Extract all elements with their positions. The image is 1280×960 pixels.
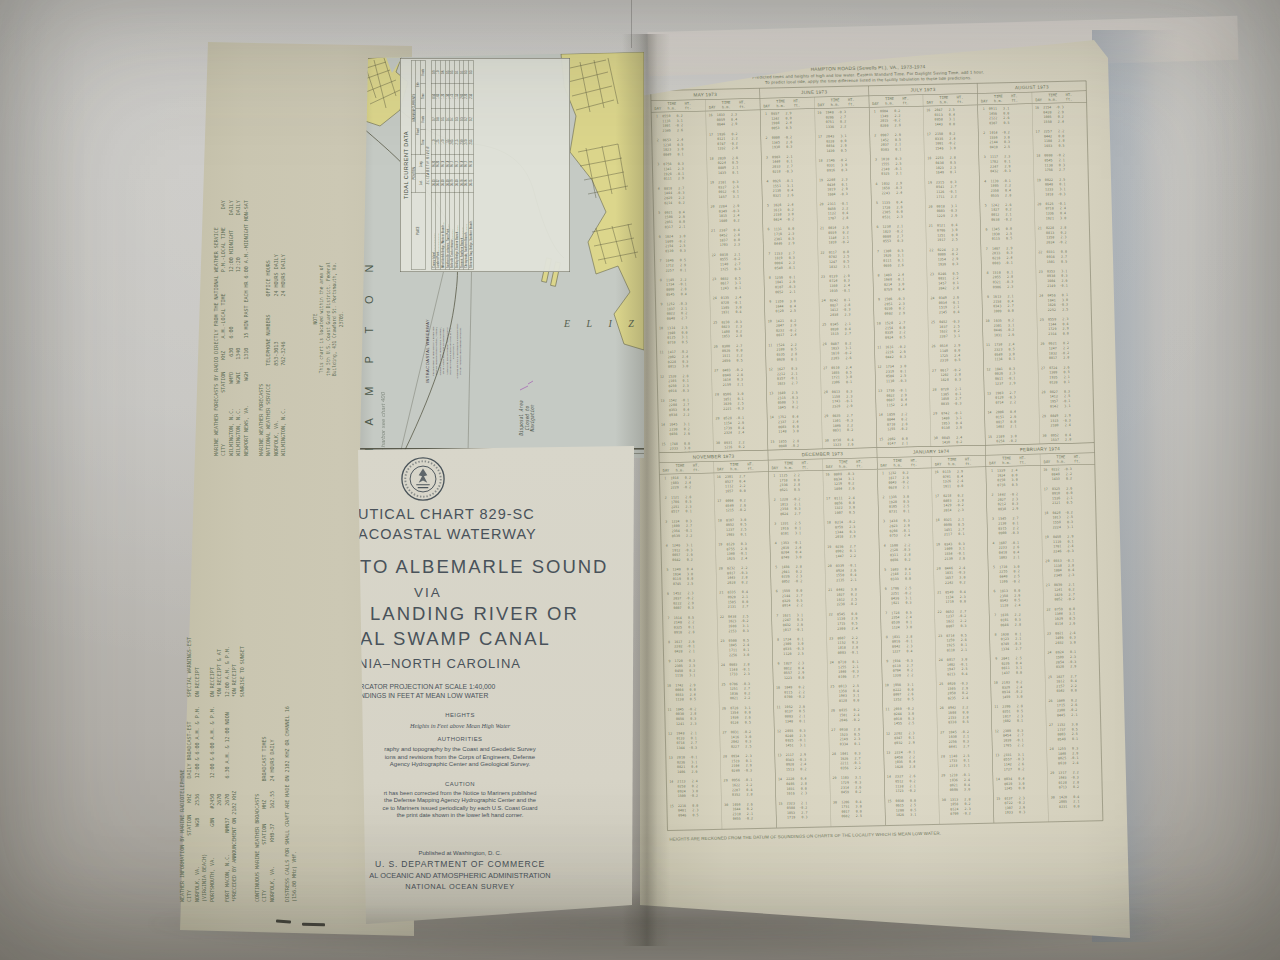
tide-half-month-column: 1 1125 2.2 1710 0.0 2336 2.8 0521 0.5 2 … — [768, 471, 831, 828]
current-value: 2 40 — [464, 130, 469, 155]
current-value: 1 05 — [436, 84, 441, 109]
current-value: 36 53 — [431, 173, 436, 192]
tide-half-month-column: 16 1940 -0.3 0206 2.7 0751 0.2 1336 2.2 … — [814, 108, 876, 449]
tide-half-month-column: 16 0222 -0.3 0848 2.2 1433 0.2 17 0325 2… — [1040, 465, 1103, 822]
current-value: 76 18 — [459, 155, 464, 174]
tide-half-month-column: 16 2301 2.7 0527 0.4 1112 2.2 1657 0.0 1… — [714, 472, 777, 829]
col-flood: Flood — [416, 109, 421, 155]
tide-table-bands: MAY 1973JUNE 1973JULY 1973AUGUST 1973 TI… — [650, 81, 1103, 831]
day-time-ht-header: TIME HT. DAY h.m. ft. — [868, 95, 923, 107]
chart-cover-panel: UTICAL CHART 829-SC ACOASTAL WATERWAY TO… — [352, 446, 634, 924]
harbor-map-drawing — [356, 52, 644, 458]
disposal-area-label: Disposal Area Closed to Navigation — [519, 388, 551, 448]
tide-half-month-column: 1 0804 0.2 1349 2.2 2015 -0.2 0200 2.8 2… — [869, 106, 931, 447]
day-time-ht-header: TIME HT. DAY h.m. ft. — [877, 457, 932, 469]
current-value: 0.5 — [450, 61, 455, 84]
col-time: Time — [421, 84, 426, 109]
col-time: Time — [421, 130, 426, 155]
caution-heading: CAUTION — [352, 781, 568, 787]
tide-band: NOVEMBER 1973DECEMBER 1973JANUARY 1974FE… — [659, 443, 1102, 831]
chart-note-block: NOTE This chart is located within the ar… — [312, 244, 350, 394]
tide-half-month-column: 1 1232 0.2 1817 2.6 0043 -0.2 0628 2.1 2… — [877, 468, 940, 825]
current-value: 2 05 — [459, 84, 464, 109]
place-name: Southern Br. entrance, Town Point...... — [445, 192, 450, 269]
current-value: 0.4 — [450, 109, 455, 130]
place-name: Chesapeake, Southern Branch............ — [464, 192, 469, 269]
day-time-ht-header: TIME HT. DAY h.m. ft. — [713, 460, 768, 472]
noaa-seal-icon — [400, 456, 446, 502]
tidal-current-row: Belleville Creek entrance..............3… — [450, 61, 455, 270]
pier-bars — [542, 258, 561, 287]
title-line-sound: TO ALBEMARLE SOUND — [360, 556, 608, 578]
tidal-current-rows: ELIZABETH RIVERCraney Island............… — [425, 61, 473, 270]
tidal-current-row: Southern Br. entrance, Town Point......3… — [445, 61, 450, 270]
tide-half-month-column: 16 2047 2.5 0313 0.4 0858 3.1 1443 0.0 1… — [923, 105, 985, 446]
current-value: 0.2 — [464, 109, 469, 130]
current-value: 2 15 — [455, 130, 460, 155]
current-value: 36 49 — [450, 173, 455, 192]
current-value: 0.5 — [445, 61, 450, 84]
current-value: 0.6 — [440, 61, 445, 84]
place-name: Lambert Point.......................... — [436, 192, 441, 269]
col-knots: Knots — [421, 61, 426, 84]
current-value: 36 52 — [436, 173, 441, 192]
place-name: West Norfolk Bridge, Western Branch.... — [440, 192, 445, 269]
tide-values-row: 1 1018 0.2 1603 2.4 2229 -0.2 2 1121 2.8… — [660, 465, 1103, 831]
tidal-current-row: Gosport, Southern Branch...............3… — [459, 61, 464, 270]
photo-of-folded-nautical-chart: HAMPTON ROADS (Sewells Pt.), VA., 1973-1… — [0, 0, 1280, 960]
current-value: 2 20 — [464, 84, 469, 109]
current-value: 36 46 — [464, 173, 469, 192]
current-value: 2 30 — [459, 130, 464, 155]
current-value: 1 45 — [450, 84, 455, 109]
tidal-current-row: Gilmerton Swg. Bridge, Southern Branch.3… — [469, 61, 474, 270]
waterway-note-text: The waterway is indicated by a purple li… — [431, 286, 462, 416]
hampton-label: H A M P T O N for harbor see chart 400 — [363, 266, 389, 456]
tide-values-row: 1 0550 0.2 1135 3.1 1801 -0.2 2346 2.6 2… — [651, 103, 1094, 453]
current-value: 76 17 — [450, 155, 455, 174]
shoreline-lines — [356, 110, 564, 452]
magenta-waterway-marks — [520, 381, 533, 390]
waterway-line: ACOASTAL WATERWAY — [358, 526, 537, 542]
current-value: 36 50 — [455, 173, 460, 192]
day-time-ht-header: TIME HT. DAY h.m. ft. — [705, 99, 760, 111]
current-value: 1 20 — [440, 84, 445, 109]
waterway-note-title: INTRACOASTAL WATERWAY — [425, 286, 430, 416]
day-time-ht-header: TIME HT. DAY h.m. ft. — [923, 94, 978, 106]
title-line-via: VIA — [414, 585, 442, 600]
place-name: Gosport, Southern Branch............... — [459, 192, 464, 269]
day-time-ht-header: TIME HT. DAY h.m. ft. — [977, 92, 1032, 104]
place-name: Craney Island.......................... — [431, 192, 436, 269]
day-time-ht-header: TIME HT. DAY h.m. ft. — [822, 458, 877, 470]
place-name: Berkley Bridge, Eastern Branch......... — [455, 192, 460, 269]
current-value: 0.3 — [459, 109, 464, 130]
hampton-note-text: for harbor see chart 400 — [380, 392, 386, 456]
tidal-current-row: West Norfolk Bridge, Western Branch....3… — [440, 61, 445, 270]
current-value: 0.9 — [431, 61, 436, 84]
day-time-ht-header: TIME HT. DAY h.m. ft. — [814, 96, 869, 108]
current-value: 0.4 — [459, 61, 464, 84]
current-value: 36 48 — [459, 173, 464, 192]
day-time-ht-header: TIME HT. DAY h.m. ft. — [760, 97, 815, 109]
published-at-text: Published at Washington, D. C. — [352, 850, 568, 856]
col-ebb: Ebb — [416, 61, 421, 109]
chart-number-line: UTICAL CHART 829-SC — [358, 506, 535, 522]
river-group-label: ELIZABETH RIVER — [425, 61, 431, 270]
current-value: 1 25 — [436, 130, 441, 155]
caution-text: rt has been corrected from the Notice to… — [352, 790, 568, 819]
tide-table-page: HAMPTON ROADS (Sewells Pt.), VA., 1973-1… — [636, 36, 1138, 948]
current-value: 0.3 — [469, 61, 474, 84]
current-value: 36 50 — [445, 173, 450, 192]
day-time-ht-header: TIME HT. DAY h.m. ft. — [1040, 453, 1095, 465]
current-value: 76 20 — [431, 155, 436, 174]
day-time-ht-header: TIME HT. DAY h.m. ft. — [768, 459, 823, 471]
tide-half-month-column: 16 0115 2.9 0741 0.4 1326 2.4 1911 0.0 1… — [931, 467, 994, 824]
heights-heading: HEIGHTS — [352, 712, 568, 718]
col-currents: MAXIMUM CURRENTS — [411, 61, 416, 155]
col-long: Long. — [416, 155, 425, 174]
tide-half-month-column: 16 1833 2.3 0059 0.4 0644 2.9 17 1936 0.… — [705, 110, 767, 451]
col-position: POSITION — [411, 155, 416, 193]
tide-half-month-column: 1 1339 2.4 1924 0.0 0150 3.0 0735 0.5 2 … — [986, 466, 1049, 823]
current-value: 0.5 — [440, 109, 445, 130]
current-value: 1 10 — [431, 130, 436, 155]
radiotelephone-block: WEATHER INFORMATION BY MARINE RADIOTELEP… — [178, 462, 328, 902]
day-time-ht-header: TIME HT. DAY h.m. ft. — [931, 455, 986, 467]
water-notch — [386, 56, 403, 73]
current-value: 0.2 — [469, 109, 474, 130]
radiotelephone-text: WEATHER INFORMATION BY MARINE RADIOTELEP… — [178, 462, 298, 902]
tidal-current-row: Chesapeake, Southern Branch............3… — [464, 61, 469, 270]
current-value: 0.4 — [445, 109, 450, 130]
dept-of-commerce-text: U. S. DEPARTMENT OF COMMERCE — [352, 859, 568, 869]
intracoastal-waterway-note: INTRACOASTAL WATERWAY The waterway is in… — [425, 286, 477, 416]
tidal-current-row: Berkley Bridge, Eastern Branch.........3… — [455, 61, 460, 270]
harbor-map-panel: TIDAL CURRENT DATA PLACE POSITION MAXIMU… — [356, 52, 644, 458]
current-value: 0.3 — [455, 109, 460, 130]
day-time-ht-header: TIME HT. DAY h.m. ft. — [1032, 91, 1087, 103]
current-value: 0.8 — [436, 109, 441, 130]
tidal-current-row: Craney Island..........................3… — [431, 61, 436, 270]
heights-text: Heights in Feet above Mean High Water — [352, 722, 568, 729]
chart-note-text: NOTE This chart is located within the ar… — [312, 244, 345, 394]
title-line-river: LANDING RIVER OR — [370, 603, 579, 625]
current-value: 0.3 — [464, 61, 469, 84]
tide-half-month-column: 1 0657 2.9 1242 0.0 1908 2.4 0053 0.5 2 … — [760, 109, 822, 450]
current-value: 2 05 — [450, 130, 455, 155]
place-name: Gilmerton Swg. Bridge, Southern Branch. — [469, 192, 474, 269]
graticule-lines — [400, 144, 474, 454]
col-knots: Knots — [421, 109, 426, 130]
day-time-ht-header: TIME HT. DAY h.m. ft. — [985, 454, 1040, 466]
current-value: 36 45 — [469, 173, 474, 192]
disposal-area-text: Disposal Area Closed to Navigation — [519, 388, 536, 448]
col-place: PLACE — [411, 192, 425, 269]
current-value: 1 55 — [445, 130, 450, 155]
col-lat: Lat. — [416, 173, 425, 192]
marine-forecasts-text: MARINE WEATHER FORECASTS BY RADIO DIRECT… — [212, 46, 287, 456]
tide-table: HAMPTON ROADS (Sewells Pt.), VA., 1973-1… — [650, 60, 1103, 842]
hampton-text: H A M P T O N — [363, 254, 375, 456]
tidal-current-data-block: TIDAL CURRENT DATA PLACE POSITION MAXIMU… — [400, 58, 570, 272]
title-line-canal: AL SWAMP CANAL — [360, 628, 551, 650]
tidal-current-data-table: PLACE POSITION MAXIMUM CURRENTS Lat. Lon… — [411, 61, 474, 270]
current-value: 1.0 — [436, 61, 441, 84]
current-value: 1 40 — [440, 130, 445, 155]
current-value: 1 55 — [455, 84, 460, 109]
street-grid — [360, 58, 638, 264]
scale-soundings-text: ERCATOR PROJECTION AT SCALE 1:40,000 UND… — [352, 682, 568, 701]
ocean-survey-text: NATIONAL OCEAN SURVEY — [352, 882, 568, 891]
current-value: 76 20 — [436, 155, 441, 174]
noaa-text: AL OCEANIC AND ATMOSPHERIC ADMINISTRATIO… — [352, 871, 568, 880]
current-value: 76 17 — [464, 155, 469, 174]
current-value: 0.4 — [455, 61, 460, 84]
current-value: 0.7 — [431, 109, 436, 130]
tide-half-month-column: 16 2154 -0.3 0420 2.9 1005 0.2 1550 2.4 … — [1032, 103, 1094, 444]
current-value: 0 50 — [431, 84, 436, 109]
current-value: 76 18 — [445, 155, 450, 174]
authorities-text: raphy and topography by the Coast and Ge… — [352, 746, 568, 769]
current-value: 36 50 — [440, 173, 445, 192]
current-value: 76 19 — [440, 155, 445, 174]
tide-half-month-column: 16 0008 -0.3 0634 3.1 1219 0.2 1804 2.6 … — [822, 469, 885, 826]
current-value: 1 30 — [445, 84, 450, 109]
title-line-states: NIA–NORTH CAROLINA — [358, 656, 521, 671]
place-name: Belleville Creek entrance.............. — [450, 192, 455, 269]
tidal-current-row: Lambert Point..........................3… — [436, 61, 441, 270]
tide-band: MAY 1973JUNE 1973JULY 1973AUGUST 1973 TI… — [651, 81, 1094, 452]
current-value: 76 17 — [455, 155, 460, 174]
current-value: 2 35 — [469, 84, 474, 109]
tide-half-month-column: 1 0911 3.1 1456 0.0 2122 2.6 0307 0.5 2 … — [978, 104, 1040, 445]
current-value: 2 55 — [469, 130, 474, 155]
current-value: 76 16 — [469, 155, 474, 174]
tidal-current-data-title: TIDAL CURRENT DATA — [403, 61, 409, 270]
land-area — [561, 52, 644, 350]
authorities-heading: AUTHORITIES — [352, 736, 568, 742]
